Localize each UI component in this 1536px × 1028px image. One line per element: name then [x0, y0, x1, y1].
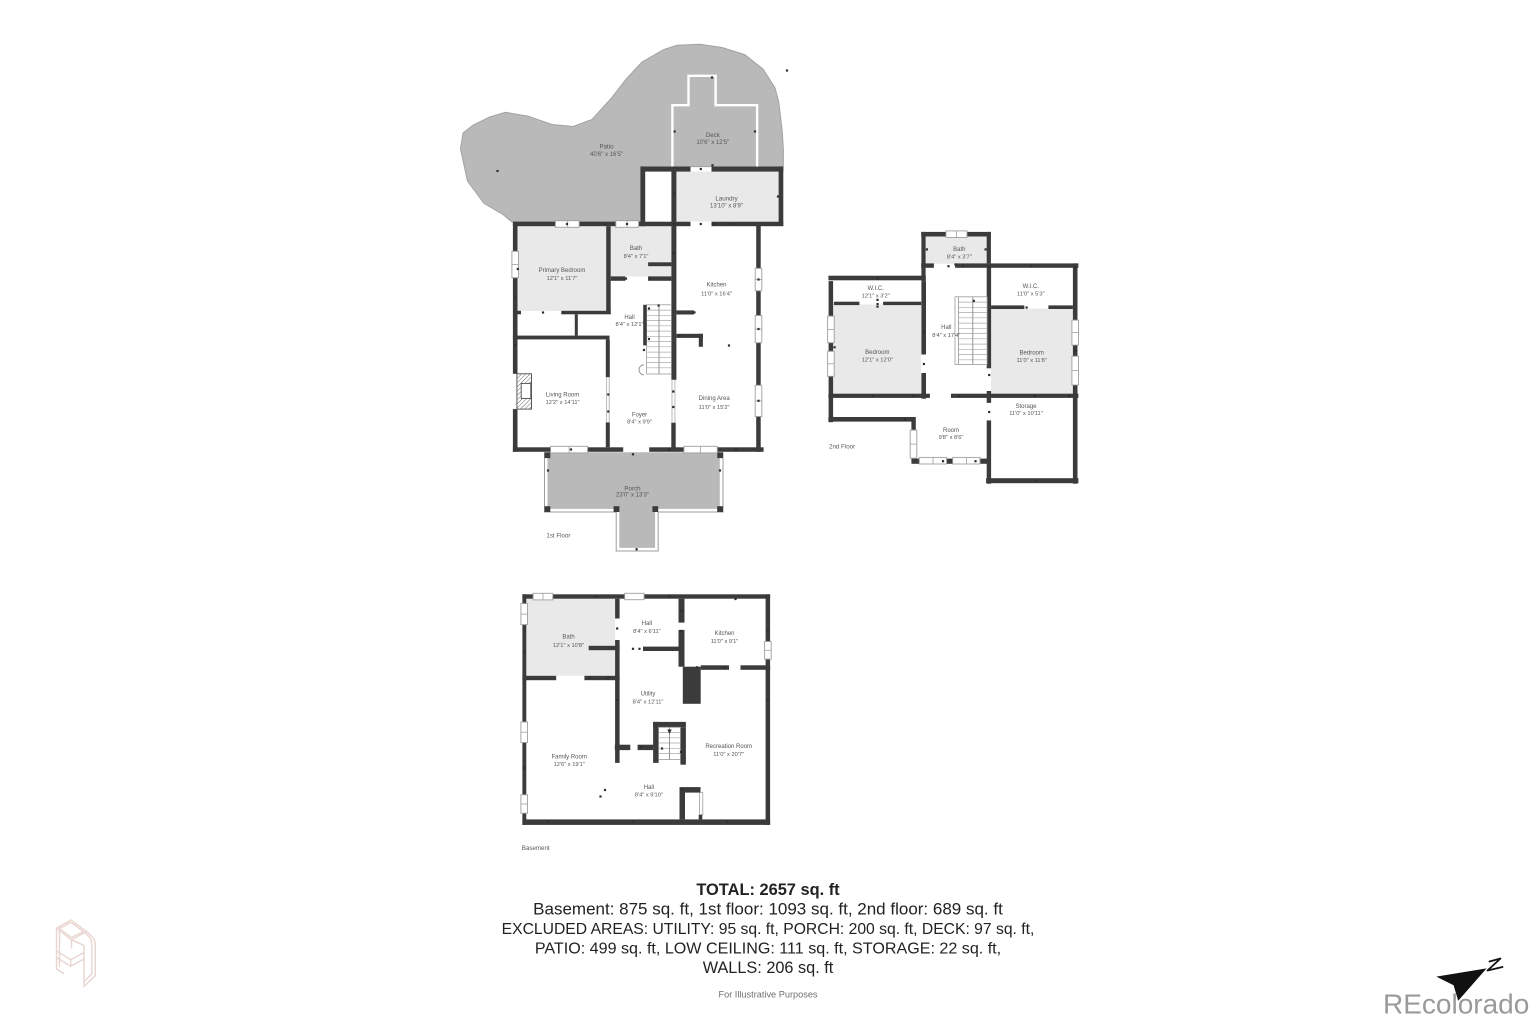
svg-text:Storage: Storage — [1015, 404, 1037, 410]
svg-text:Patio: Patio — [599, 144, 614, 151]
svg-text:EXCLUDED AREAS: UTILITY: 95 sq: EXCLUDED AREAS: UTILITY: 95 sq. ft, PORC… — [502, 921, 1035, 938]
svg-text:1st Floor: 1st Floor — [546, 533, 570, 540]
svg-text:Bath: Bath — [562, 635, 574, 641]
svg-text:40'6" x 16'5": 40'6" x 16'5" — [590, 152, 623, 158]
svg-text:Utility: Utility — [641, 692, 656, 698]
svg-text:12'1" x 3'2": 12'1" x 3'2" — [862, 293, 890, 299]
svg-text:W.I.C.: W.I.C. — [1023, 284, 1040, 290]
svg-text:11'0" x 9'1": 11'0" x 9'1" — [711, 639, 739, 645]
svg-text:12'6" x 19'1": 12'6" x 19'1" — [554, 762, 585, 768]
svg-text:8'4" x 12'1": 8'4" x 12'1" — [615, 322, 643, 328]
svg-text:12'1" x 11'7": 12'1" x 11'7" — [547, 276, 578, 282]
svg-text:W.I.C.: W.I.C. — [868, 286, 885, 292]
svg-text:Primary Bedroom: Primary Bedroom — [539, 268, 586, 274]
svg-text:Living Room: Living Room — [546, 393, 579, 399]
svg-text:8'4" x 6'11": 8'4" x 6'11" — [633, 629, 661, 635]
svg-text:Bedroom: Bedroom — [865, 350, 889, 356]
svg-text:Family Room: Family Room — [552, 754, 587, 760]
svg-text:Kitchen: Kitchen — [706, 283, 726, 289]
svg-text:11'0" x 11'8": 11'0" x 11'8" — [1017, 358, 1047, 364]
svg-text:11'0" x 5'3": 11'0" x 5'3" — [1017, 292, 1045, 298]
svg-text:9'8" x 8'6": 9'8" x 8'6" — [939, 435, 964, 441]
svg-text:8'4" x 7'1": 8'4" x 7'1" — [624, 254, 649, 260]
svg-text:11'0" x 20'7": 11'0" x 20'7" — [713, 752, 744, 758]
svg-text:Recreation Room: Recreation Room — [705, 744, 752, 750]
svg-text:Hall: Hall — [642, 621, 652, 627]
svg-text:Porch: Porch — [624, 486, 641, 493]
svg-text:23'0" x 13'3": 23'0" x 13'3" — [616, 493, 649, 499]
svg-text:8'4" x 9'10": 8'4" x 9'10" — [635, 793, 663, 799]
svg-text:13'10" x 8'9": 13'10" x 8'9" — [710, 203, 743, 209]
svg-text:Kitchen: Kitchen — [714, 631, 734, 637]
svg-text:WALLS: 206 sq. ft: WALLS: 206 sq. ft — [703, 959, 834, 977]
svg-text:11'0" x 16'4": 11'0" x 16'4" — [701, 291, 732, 297]
svg-text:Bath: Bath — [953, 247, 965, 253]
svg-text:12'1" x 12'0": 12'1" x 12'0" — [862, 357, 893, 363]
svg-text:Hall: Hall — [624, 315, 634, 321]
svg-text:Deck: Deck — [706, 132, 721, 139]
svg-text:Room: Room — [943, 428, 959, 434]
svg-text:Basement: Basement — [522, 845, 550, 852]
svg-text:Laundry: Laundry — [715, 195, 738, 202]
svg-text:Dining Area: Dining Area — [699, 396, 731, 402]
svg-text:10'6" x 12'5": 10'6" x 12'5" — [696, 140, 729, 146]
svg-text:8'4" x 3'7": 8'4" x 3'7" — [947, 254, 972, 260]
svg-text:Hall: Hall — [644, 785, 654, 791]
svg-text:Bedroom: Bedroom — [1020, 351, 1044, 357]
svg-text:Bath: Bath — [630, 246, 642, 252]
svg-text:Basement: 875 sq. ft, 1st floo: Basement: 875 sq. ft, 1st floor: 1093 sq… — [533, 899, 1003, 918]
svg-text:Hall: Hall — [941, 325, 951, 331]
svg-text:REcolorado: REcolorado — [1383, 989, 1529, 1020]
svg-text:PATIO: 499 sq. ft, LOW CEILING: PATIO: 499 sq. ft, LOW CEILING: 111 sq. … — [535, 940, 1001, 958]
svg-text:8'4" x 12'11": 8'4" x 12'11" — [633, 700, 664, 706]
svg-text:11'0" x 10'11": 11'0" x 10'11" — [1009, 411, 1043, 417]
svg-text:8'4" x 17'4": 8'4" x 17'4" — [932, 333, 960, 339]
svg-text:For Illustrative Purposes: For Illustrative Purposes — [718, 989, 817, 999]
svg-text:8'4" x 9'9": 8'4" x 9'9" — [627, 420, 652, 426]
svg-text:12'2" x 14'11": 12'2" x 14'11" — [546, 400, 580, 406]
svg-text:12'1" x 10'8": 12'1" x 10'8" — [553, 643, 584, 649]
svg-text:11'0" x 15'2": 11'0" x 15'2" — [699, 405, 730, 411]
svg-text:Foyer: Foyer — [632, 412, 647, 418]
svg-text:TOTAL: 2657 sq. ft: TOTAL: 2657 sq. ft — [696, 881, 840, 899]
svg-text:2nd Floor: 2nd Floor — [829, 443, 855, 450]
